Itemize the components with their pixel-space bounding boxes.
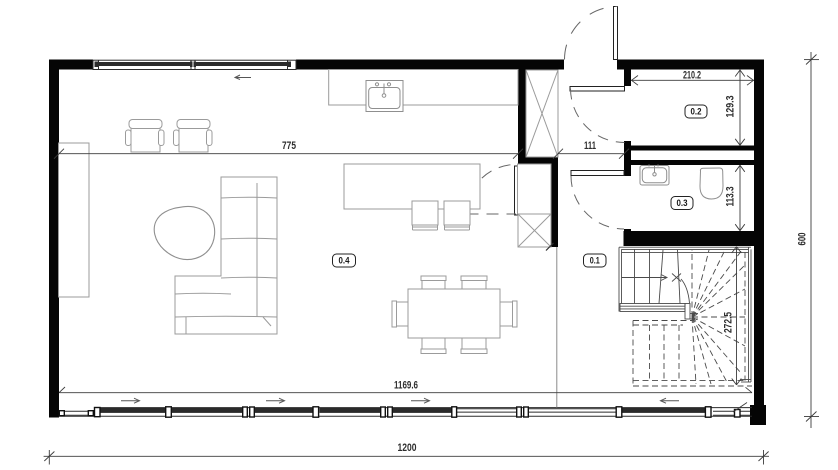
svg-text:775: 775: [282, 140, 296, 152]
svg-text:210.2: 210.2: [683, 70, 701, 82]
svg-text:1169.6: 1169.6: [394, 379, 418, 391]
svg-text:0.4: 0.4: [339, 256, 350, 266]
svg-text:0.3: 0.3: [677, 198, 688, 208]
svg-text:272.5: 272.5: [723, 312, 735, 333]
svg-text:129.3: 129.3: [725, 96, 737, 118]
svg-text:1200: 1200: [398, 442, 417, 454]
svg-text:0.1: 0.1: [590, 256, 600, 266]
svg-text:113.3: 113.3: [725, 187, 737, 207]
svg-text:600: 600: [797, 233, 809, 246]
svg-text:0.2: 0.2: [691, 107, 702, 117]
svg-text:111: 111: [584, 140, 596, 152]
